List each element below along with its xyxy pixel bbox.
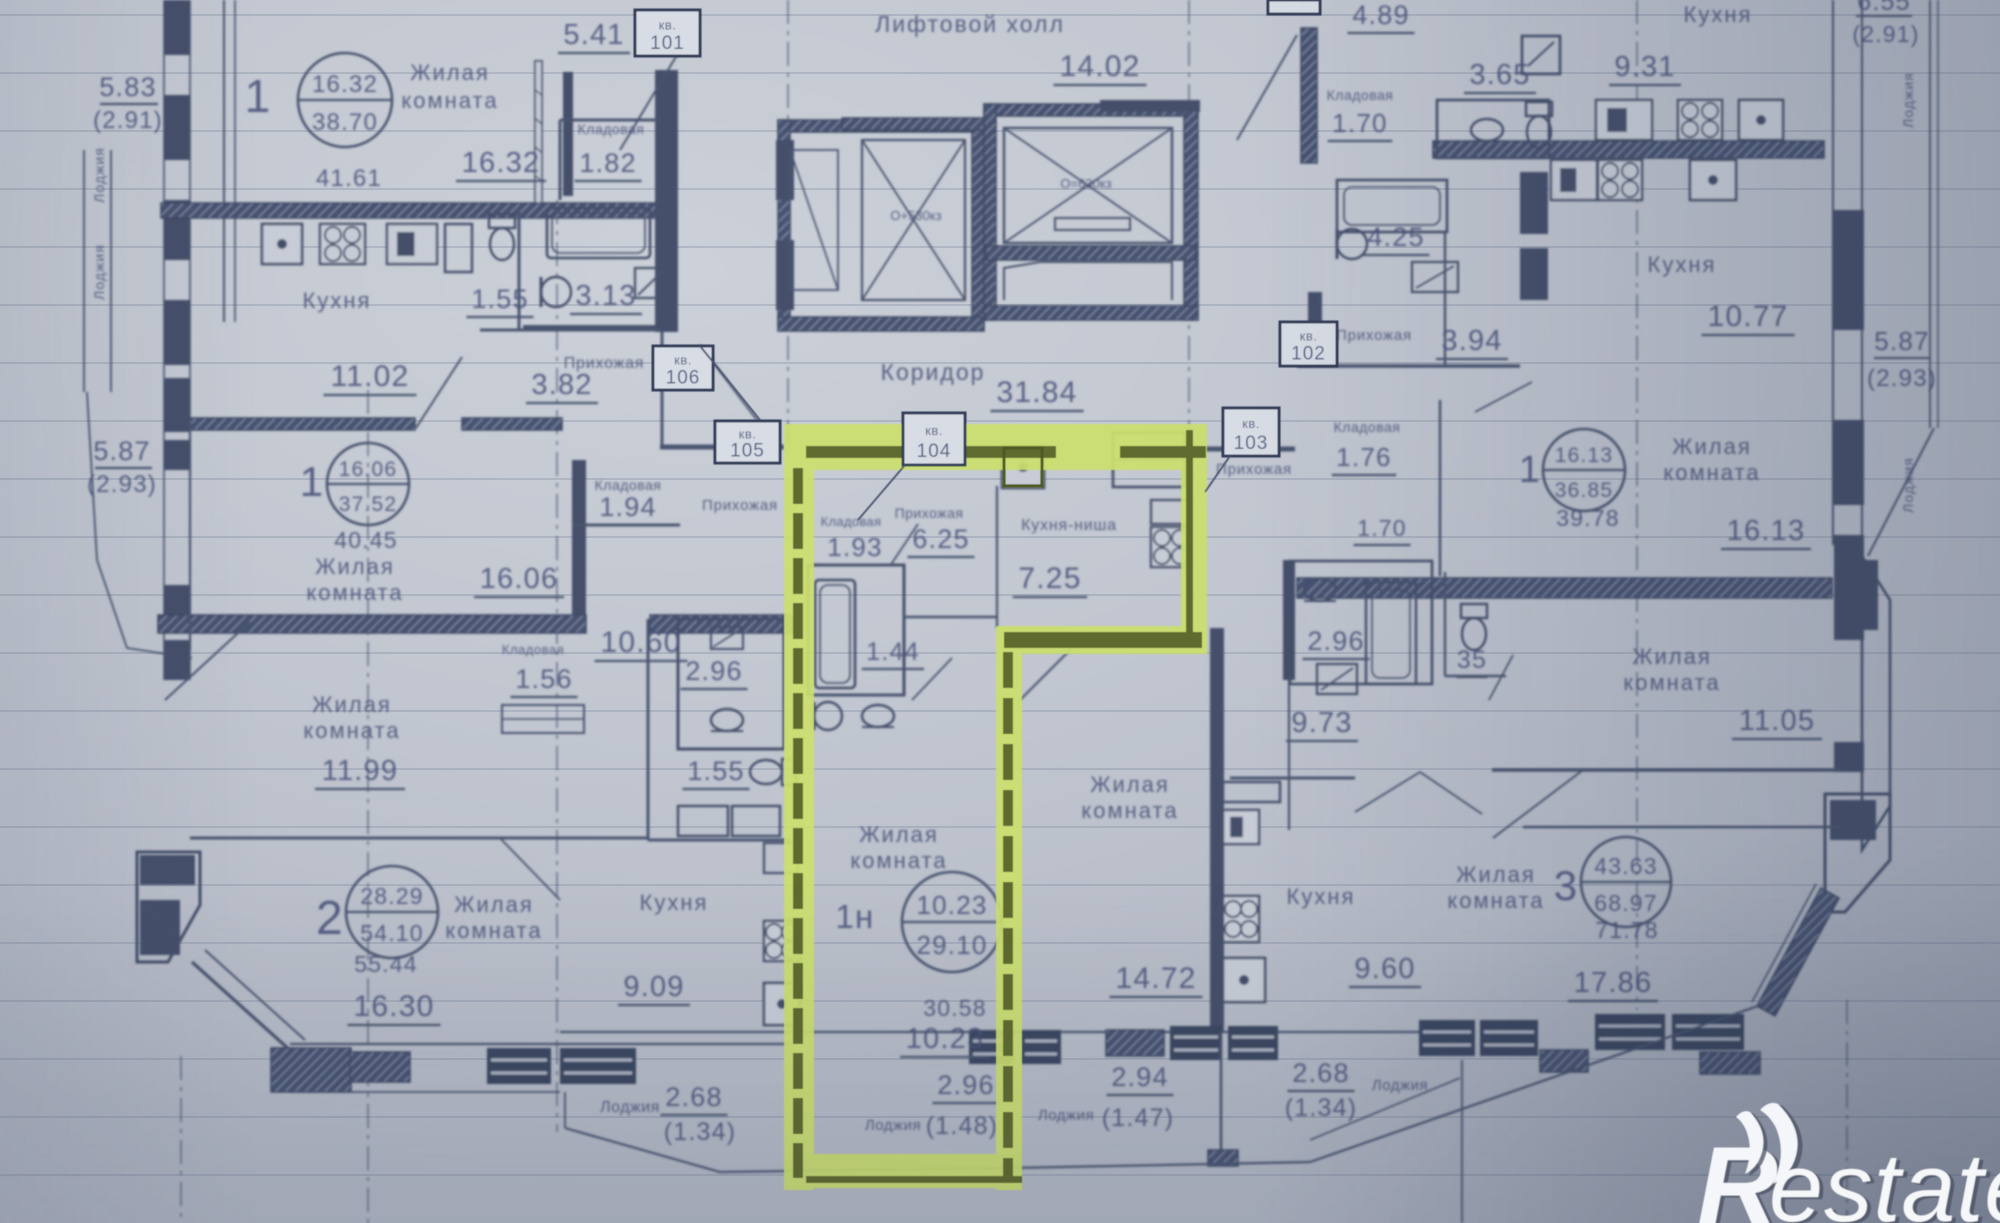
svg-text:1.82: 1.82 xyxy=(579,148,636,178)
svg-text:2.96: 2.96 xyxy=(685,656,742,686)
svg-text:16.32: 16.32 xyxy=(462,147,541,179)
svg-text:Жилая: Жилая xyxy=(410,60,490,85)
svg-text:Жилая: Жилая xyxy=(315,554,395,579)
svg-text:Прихожая: Прихожая xyxy=(895,505,964,521)
svg-text:кв.: кв. xyxy=(925,423,943,438)
svg-text:16.06: 16.06 xyxy=(480,563,559,595)
svg-text:106: 106 xyxy=(666,367,701,388)
svg-text:38.70: 38.70 xyxy=(312,109,378,136)
svg-text:41.61: 41.61 xyxy=(316,165,382,192)
svg-text:11.02: 11.02 xyxy=(331,360,410,393)
svg-text:1.55: 1.55 xyxy=(687,756,744,786)
svg-text:комната: комната xyxy=(306,580,403,605)
svg-text:1.94: 1.94 xyxy=(599,492,656,522)
svg-text:Жилая: Жилая xyxy=(312,692,392,717)
svg-text:3.13: 3.13 xyxy=(575,280,636,312)
svg-text:16.06: 16.06 xyxy=(339,458,398,481)
svg-text:40.45: 40.45 xyxy=(334,527,398,553)
svg-text:комната: комната xyxy=(1081,798,1178,823)
svg-text:105: 105 xyxy=(730,441,765,462)
svg-text:7.25: 7.25 xyxy=(1018,562,1081,595)
svg-text:Кладовая: Кладовая xyxy=(821,514,882,529)
svg-text:104: 104 xyxy=(917,441,952,462)
svg-text:1.93: 1.93 xyxy=(827,532,882,562)
svg-text:10.60: 10.60 xyxy=(600,626,681,659)
svg-text:3.82: 3.82 xyxy=(531,369,592,401)
svg-text:11.99: 11.99 xyxy=(322,755,398,787)
svg-text:О=630кз: О=630кз xyxy=(1060,176,1111,191)
svg-text:О+530кз: О+530кз xyxy=(890,208,941,223)
svg-text:Кладовая: Кладовая xyxy=(502,642,564,657)
svg-text:Кладовая: Кладовая xyxy=(595,477,662,493)
svg-text:6.25: 6.25 xyxy=(912,524,969,554)
svg-text:комната: комната xyxy=(401,88,498,113)
svg-text:кв.: кв. xyxy=(739,427,757,442)
svg-text:1.44: 1.44 xyxy=(866,638,919,666)
svg-text:Коридор: Коридор xyxy=(881,359,986,385)
svg-text:Прихожая: Прихожая xyxy=(702,497,778,514)
svg-text:16.32: 16.32 xyxy=(312,71,378,98)
svg-text:комната: комната xyxy=(303,718,400,743)
svg-text:кв.: кв. xyxy=(674,352,692,367)
svg-text:Жилая: Жилая xyxy=(859,822,939,847)
svg-text:31.84: 31.84 xyxy=(996,376,1077,409)
svg-text:14.02: 14.02 xyxy=(1059,50,1140,83)
svg-text:1.55: 1.55 xyxy=(471,284,528,314)
svg-text:1.56: 1.56 xyxy=(515,664,572,694)
svg-text:estate: estate xyxy=(1769,1133,2000,1223)
svg-text:Кладовая: Кладовая xyxy=(578,121,645,137)
svg-text:Кухня: Кухня xyxy=(303,288,372,313)
svg-text:Жилая: Жилая xyxy=(1090,772,1170,797)
svg-text:кв.: кв. xyxy=(659,17,677,32)
svg-text:5.41: 5.41 xyxy=(563,19,624,51)
svg-text:Лифтовой холл: Лифтовой холл xyxy=(875,11,1065,37)
svg-text:1: 1 xyxy=(300,458,325,505)
svg-text:Кухня-ниша: Кухня-ниша xyxy=(1021,517,1117,534)
svg-text:101: 101 xyxy=(650,33,685,54)
svg-text:37.52: 37.52 xyxy=(339,493,398,516)
svg-text:комната: комната xyxy=(850,848,947,873)
